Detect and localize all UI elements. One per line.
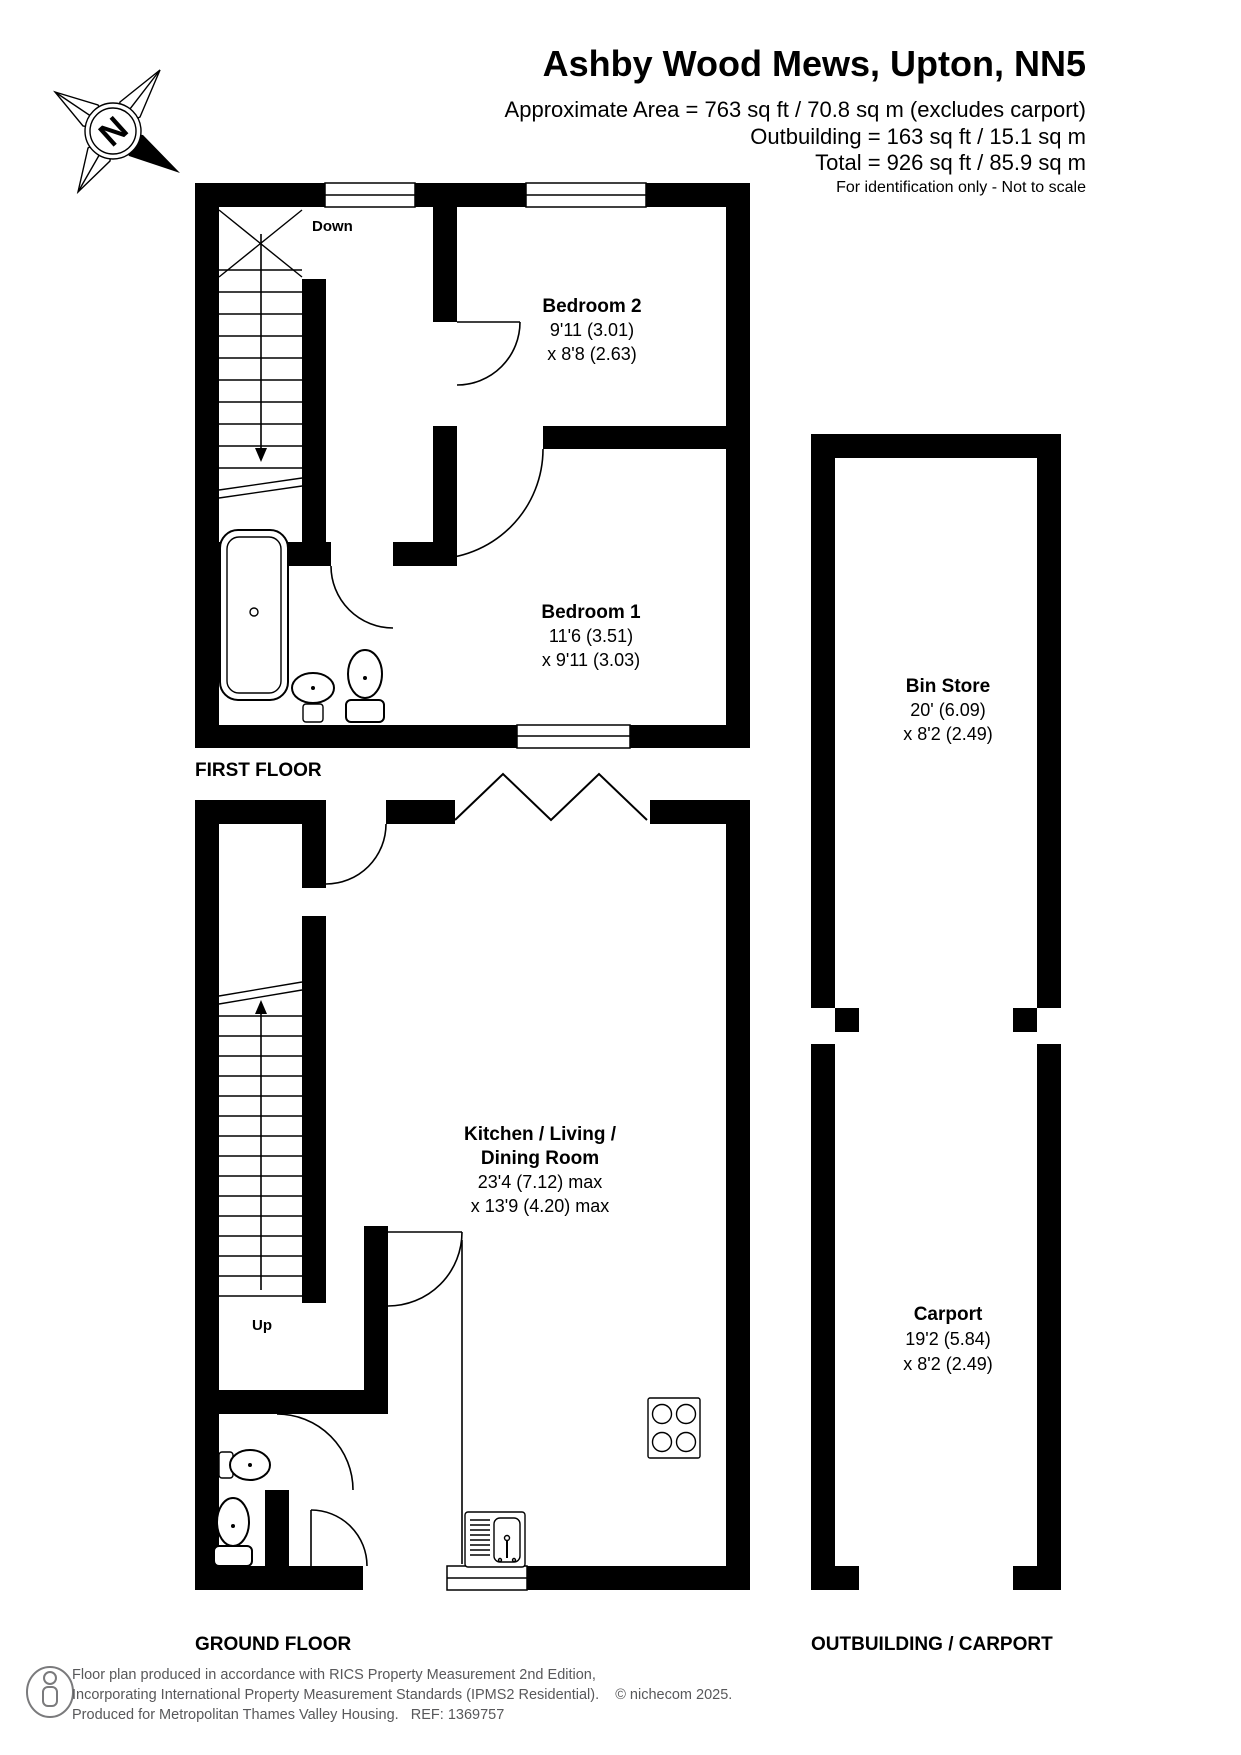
kitchen-sink-icon	[465, 1512, 525, 1567]
total-line: Total = 926 sq ft / 85.9 sq m	[815, 150, 1086, 175]
toilet-icon	[346, 650, 384, 722]
door-arc	[311, 1510, 367, 1566]
room-name: Bedroom 2	[542, 296, 641, 317]
ground-floor-windows	[447, 1566, 527, 1590]
up-arrow-icon	[255, 1000, 267, 1014]
door-arc	[277, 1414, 353, 1490]
room-dim: x 8'2 (2.49)	[903, 724, 992, 744]
footer-line-1: Floor plan produced in accordance with R…	[72, 1667, 596, 1683]
door-arc	[388, 1232, 462, 1306]
bedroom2-label: Bedroom 2 9'11 (3.01) x 8'8 (2.63)	[542, 296, 641, 364]
room-name: Bin Store	[906, 676, 990, 697]
outbuilding-plan: Bin Store 20' (6.09) x 8'2 (2.49) Carpor…	[811, 434, 1061, 1655]
bathtub-icon	[220, 530, 288, 700]
footer: Floor plan produced in accordance with R…	[27, 1667, 732, 1723]
page-title: Ashby Wood Mews, Upton, NN5	[543, 43, 1086, 84]
open-boundary-zigzag	[455, 774, 647, 820]
room-name: Bedroom 1	[541, 602, 641, 623]
room-dim: x 13'9 (4.20) max	[471, 1196, 610, 1216]
stairs-up	[219, 982, 302, 1296]
wc-toilet-icon	[214, 1498, 252, 1566]
disclaimer: For identification only - Not to scale	[836, 179, 1086, 196]
header: Ashby Wood Mews, Upton, NN5 Approximate …	[505, 43, 1087, 196]
room-name: Carport	[914, 1304, 983, 1325]
stairs-down	[219, 210, 302, 498]
stairs-down-label: Down	[312, 218, 353, 235]
kitchen-label: Kitchen / Living / Dining Room 23'4 (7.1…	[464, 1124, 617, 1216]
outbuilding-line: Outbuilding = 163 sq ft / 15.1 sq m	[750, 124, 1086, 149]
hob-icon	[648, 1398, 700, 1458]
door-arc	[331, 566, 393, 628]
down-arrow-icon	[255, 448, 267, 462]
area-line: Approximate Area = 763 sq ft / 70.8 sq m…	[505, 97, 1086, 122]
room-dim: 11'6 (3.51)	[549, 626, 633, 646]
wc-sink-icon	[219, 1450, 270, 1480]
ground-floor-plan: Up	[195, 774, 750, 1655]
carport-label: Carport 19'2 (5.84) x 8'2 (2.49)	[903, 1304, 992, 1374]
room-dim: x 8'2 (2.49)	[903, 1354, 992, 1374]
first-floor-label: FIRST FLOOR	[195, 760, 322, 781]
sink-icon	[292, 673, 334, 722]
bedroom1-label: Bedroom 1 11'6 (3.51) x 9'11 (3.03)	[541, 602, 641, 670]
room-dim: x 8'8 (2.63)	[547, 344, 636, 364]
first-floor-plan: Down Bedroom 2 9'11 (3.01) x 8'8 (2.63)	[195, 183, 750, 781]
room-name: Kitchen / Living /	[464, 1124, 617, 1145]
door-arc	[457, 322, 520, 385]
outbuilding-label: OUTBUILDING / CARPORT	[811, 1634, 1053, 1655]
door-arc	[326, 824, 386, 884]
outbuilding-walls	[811, 434, 1061, 1590]
room-dim: x 9'11 (3.03)	[542, 650, 640, 670]
floor-plan-drawing: Ashby Wood Mews, Upton, NN5 Approximate …	[0, 0, 1241, 1755]
ground-floor-label: GROUND FLOOR	[195, 1634, 351, 1655]
room-dim: 9'11 (3.01)	[550, 320, 634, 340]
compass-icon: N	[55, 70, 180, 192]
floor-plan-page: Ashby Wood Mews, Upton, NN5 Approximate …	[0, 0, 1241, 1755]
room-dim: 23'4 (7.12) max	[478, 1172, 603, 1192]
room-dim: 19'2 (5.84)	[905, 1329, 991, 1349]
footer-line-2: Incorporating International Property Mea…	[72, 1687, 732, 1703]
nichecom-logo-icon	[27, 1667, 73, 1717]
footer-line-3: Produced for Metropolitan Thames Valley …	[72, 1707, 504, 1723]
bin-store-label: Bin Store 20' (6.09) x 8'2 (2.49)	[903, 676, 992, 744]
room-dim: 20' (6.09)	[910, 700, 985, 720]
ground-floor-walls	[195, 800, 750, 1590]
stairs-up-label: Up	[252, 1317, 272, 1334]
room-name: Dining Room	[481, 1148, 599, 1169]
